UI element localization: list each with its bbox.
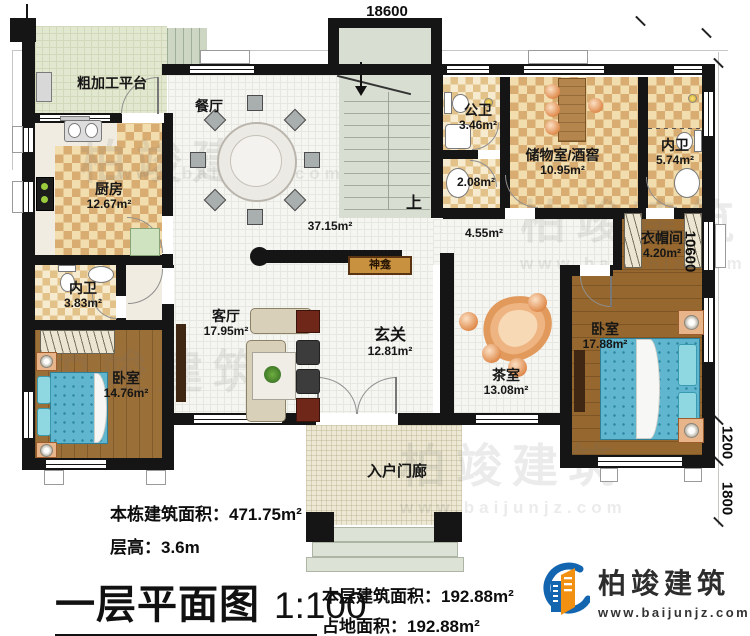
- window: [524, 64, 604, 75]
- wall-kitchen-bottom: [35, 255, 163, 265]
- kitchen-sink-basin: [85, 123, 98, 138]
- armchair: [296, 340, 320, 365]
- room-label-bath-left: 内卫3.83m²: [52, 281, 114, 310]
- wall-stairs-right: [431, 64, 443, 218]
- door-opening: [580, 265, 610, 276]
- porch-step: [312, 542, 458, 557]
- wall-stair-bump-left: [328, 18, 339, 75]
- door-opening: [162, 268, 174, 304]
- floor-plan-page: 柏竣建筑 www.baijunjz.com 柏竣建筑www.baijunjz.c…: [0, 0, 750, 636]
- lamp: [684, 423, 699, 438]
- stat-footprint-area: 占地面积：192.88m²: [322, 612, 480, 636]
- porch-step: [318, 527, 452, 542]
- wall-north-rooms-bottom: [443, 208, 715, 219]
- window: [598, 455, 682, 468]
- area-label-open: 37.15m²: [298, 220, 362, 233]
- porch-step: [306, 557, 464, 572]
- area-label-corridor: 4.55m²: [452, 227, 516, 240]
- door-opening: [505, 208, 535, 219]
- window: [674, 64, 702, 75]
- side-table: [296, 310, 320, 333]
- window: [702, 222, 715, 270]
- window: [22, 128, 35, 152]
- dim-right-main: 10600: [682, 217, 699, 287]
- shower-partition: [648, 128, 702, 129]
- wall-tea-bedright: [560, 265, 572, 468]
- side-table: [296, 398, 320, 422]
- window: [190, 64, 254, 75]
- dining-chair: [247, 209, 263, 225]
- room-label-public-bath: 公卫3.46m²: [452, 103, 504, 132]
- tea-stool: [528, 293, 547, 312]
- platform-sink: [36, 72, 52, 102]
- window-sill: [528, 50, 588, 64]
- stat-floor-height: 层高：3.6m: [110, 533, 200, 558]
- counter-edge: [60, 116, 90, 121]
- tea-stool: [482, 344, 501, 363]
- stove-burner: [41, 196, 48, 203]
- wall-cloak-left: [613, 208, 622, 270]
- room-label-kitchen: 厨房12.67m²: [78, 182, 140, 211]
- plant: [264, 366, 281, 383]
- room-label-porch: 入户门廊: [340, 464, 454, 481]
- dining-chair: [304, 152, 320, 168]
- window: [702, 92, 715, 136]
- room-label-platform: 粗加工平台: [62, 76, 162, 92]
- company-name: 柏竣建筑: [598, 562, 750, 602]
- lamp: [40, 444, 53, 457]
- plan-title: 一层平面图1:100: [55, 572, 317, 636]
- bed-right-pillow: [678, 344, 697, 386]
- window: [46, 458, 106, 470]
- logo-icon: [540, 561, 590, 621]
- dim-right-upper: 1200: [719, 421, 736, 465]
- porch-pillar-left: [306, 512, 334, 542]
- window-sill: [12, 181, 23, 213]
- corridor-floor: [433, 219, 613, 265]
- window-sill: [684, 468, 702, 482]
- window-sill: [600, 468, 618, 482]
- room-label-bedroom-left: 卧室14.76m²: [86, 371, 166, 400]
- window-sill: [715, 224, 726, 268]
- tv-cabinet-living: [176, 324, 186, 402]
- plan-title-text: 一层平面图: [55, 583, 260, 627]
- window: [22, 182, 35, 212]
- bed-left-pillow: [37, 376, 51, 404]
- wine-jar: [588, 98, 603, 113]
- stairs-up-label: 上: [402, 195, 426, 213]
- toilet-tank: [444, 92, 452, 114]
- wine-jar: [545, 102, 560, 117]
- stair-treads: [344, 92, 430, 210]
- toilet-tank: [58, 265, 76, 272]
- tea-stool: [459, 312, 478, 331]
- bed-right-sheet: [636, 339, 660, 439]
- door-leaf: [395, 377, 397, 414]
- window: [476, 413, 538, 425]
- shrine-label: 神龛: [369, 259, 391, 271]
- dining-chair: [247, 95, 263, 111]
- room-label-tea: 茶室13.08m²: [468, 368, 544, 397]
- wine-jar: [545, 84, 560, 99]
- room-label-hall: 玄关12.81m²: [350, 327, 430, 358]
- armchair: [296, 369, 320, 394]
- wall-column-dot: [250, 247, 269, 266]
- wine-rack: [558, 78, 586, 142]
- dining-chair: [190, 152, 206, 168]
- fridge: [130, 228, 160, 256]
- bed-left-pillow: [37, 408, 51, 436]
- lamp: [40, 355, 53, 368]
- porch-pillar-right: [434, 512, 462, 542]
- lamp: [684, 315, 699, 330]
- door-opening: [162, 216, 173, 254]
- stove-burner: [41, 183, 48, 190]
- room-label-storage: 储物室/酒窖10.95m²: [505, 148, 620, 177]
- window-sill: [146, 470, 166, 485]
- dim-right-lower: 1800: [719, 477, 736, 521]
- area-label-wash: 2.08m²: [448, 176, 504, 189]
- window: [22, 392, 35, 438]
- wall-hall-tea: [440, 253, 454, 413]
- door-leaf: [610, 276, 612, 307]
- room-label-bedroom-right: 卧室17.88m²: [566, 322, 644, 351]
- room-label-dining: 餐厅: [182, 99, 236, 115]
- dining-table-top: [230, 135, 282, 187]
- dim-top: 18600: [352, 3, 422, 20]
- company-website: www.baijunjz.com: [598, 605, 750, 620]
- kitchen-sink-basin: [68, 123, 81, 138]
- stair-divider: [388, 92, 389, 210]
- door-opening: [478, 150, 500, 159]
- door-opening: [116, 296, 126, 318]
- dimension-tick: [635, 16, 646, 27]
- entrance-door-opening: [316, 413, 398, 425]
- stat-this-floor-area: 本层建筑面积：192.88m²: [322, 582, 514, 607]
- wine-jar: [545, 120, 560, 135]
- room-label-living: 客厅17.95m²: [188, 309, 264, 338]
- wall-bathleft-bottom: [35, 320, 165, 330]
- room-label-bath-right: 内卫5.74m²: [640, 138, 710, 167]
- door-opening: [646, 208, 674, 219]
- wardrobe-bedroom-left: [40, 330, 115, 354]
- window-sill: [12, 126, 23, 153]
- stair-arrow-head: [355, 86, 367, 96]
- lamp: [688, 94, 697, 103]
- dimension-tick: [701, 28, 712, 39]
- tv-cabinet-bedroom-right: [574, 350, 585, 412]
- wash-basin: [674, 168, 700, 198]
- shrine-cabinet: 神龛: [348, 256, 412, 275]
- door-opening: [122, 113, 164, 123]
- company-logo: 柏竣建筑 www.baijunjz.com: [540, 561, 750, 621]
- window-sill: [44, 470, 64, 485]
- window-sill: [200, 50, 250, 64]
- stat-total-area: 本栋建筑面积：471.75m²: [110, 500, 302, 525]
- window: [447, 64, 489, 75]
